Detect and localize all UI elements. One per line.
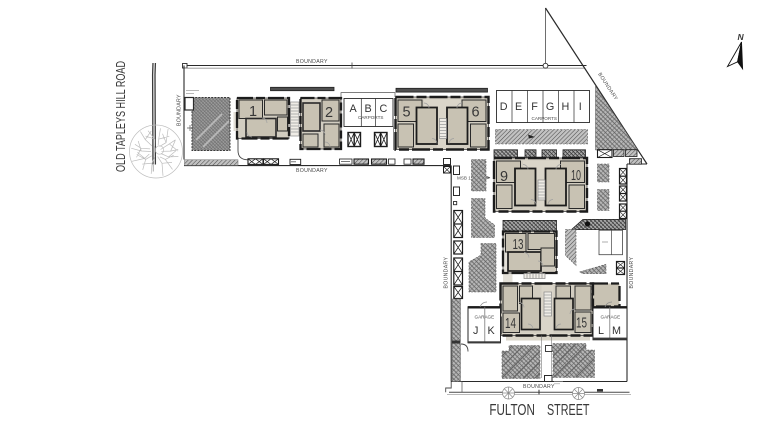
svg-text:13: 13 [513,237,524,253]
svg-text:BOUNDARY: BOUNDARY [523,384,555,390]
svg-text:BOUNDARY: BOUNDARY [177,94,183,126]
svg-text:I: I [579,101,582,113]
svg-text:CARPORTS: CARPORTS [358,115,383,120]
svg-text:N: N [738,32,745,42]
svg-text:BOUNDARY: BOUNDARY [296,168,328,174]
svg-text:15: 15 [576,316,587,332]
svg-text:9: 9 [500,169,508,185]
svg-text:E: E [515,101,522,113]
svg-text:GARAGE: GARAGE [601,315,621,320]
svg-text:GARAGE: GARAGE [475,315,495,320]
svg-text:2: 2 [325,105,333,121]
svg-text:F: F [531,101,538,113]
svg-text:STREET: STREET [547,402,590,419]
svg-text:BOUNDARY: BOUNDARY [444,257,450,289]
svg-text:14: 14 [505,316,516,332]
svg-text:BOUNDARY: BOUNDARY [629,257,635,289]
svg-text:K: K [488,325,496,337]
svg-text:1: 1 [249,104,257,120]
svg-text:L: L [598,325,604,337]
svg-text:5: 5 [403,105,411,121]
svg-text:J: J [473,325,478,337]
svg-text:D: D [500,101,508,113]
svg-text:A: A [350,103,358,115]
svg-text:CARPORTS: CARPORTS [532,116,557,121]
svg-text:MSB 1: MSB 1 [457,176,471,181]
svg-text:OLD TAPLEYS HILL ROAD: OLD TAPLEYS HILL ROAD [114,61,128,172]
svg-text:10: 10 [571,168,581,184]
svg-text:B: B [365,103,372,115]
svg-text:FULTON: FULTON [489,402,535,419]
svg-text:H: H [562,101,570,113]
svg-text:BOUNDARY: BOUNDARY [296,59,328,65]
svg-text:6: 6 [472,105,480,121]
svg-text:C: C [380,103,388,115]
svg-text:G: G [546,101,554,113]
svg-text:M: M [612,325,621,337]
